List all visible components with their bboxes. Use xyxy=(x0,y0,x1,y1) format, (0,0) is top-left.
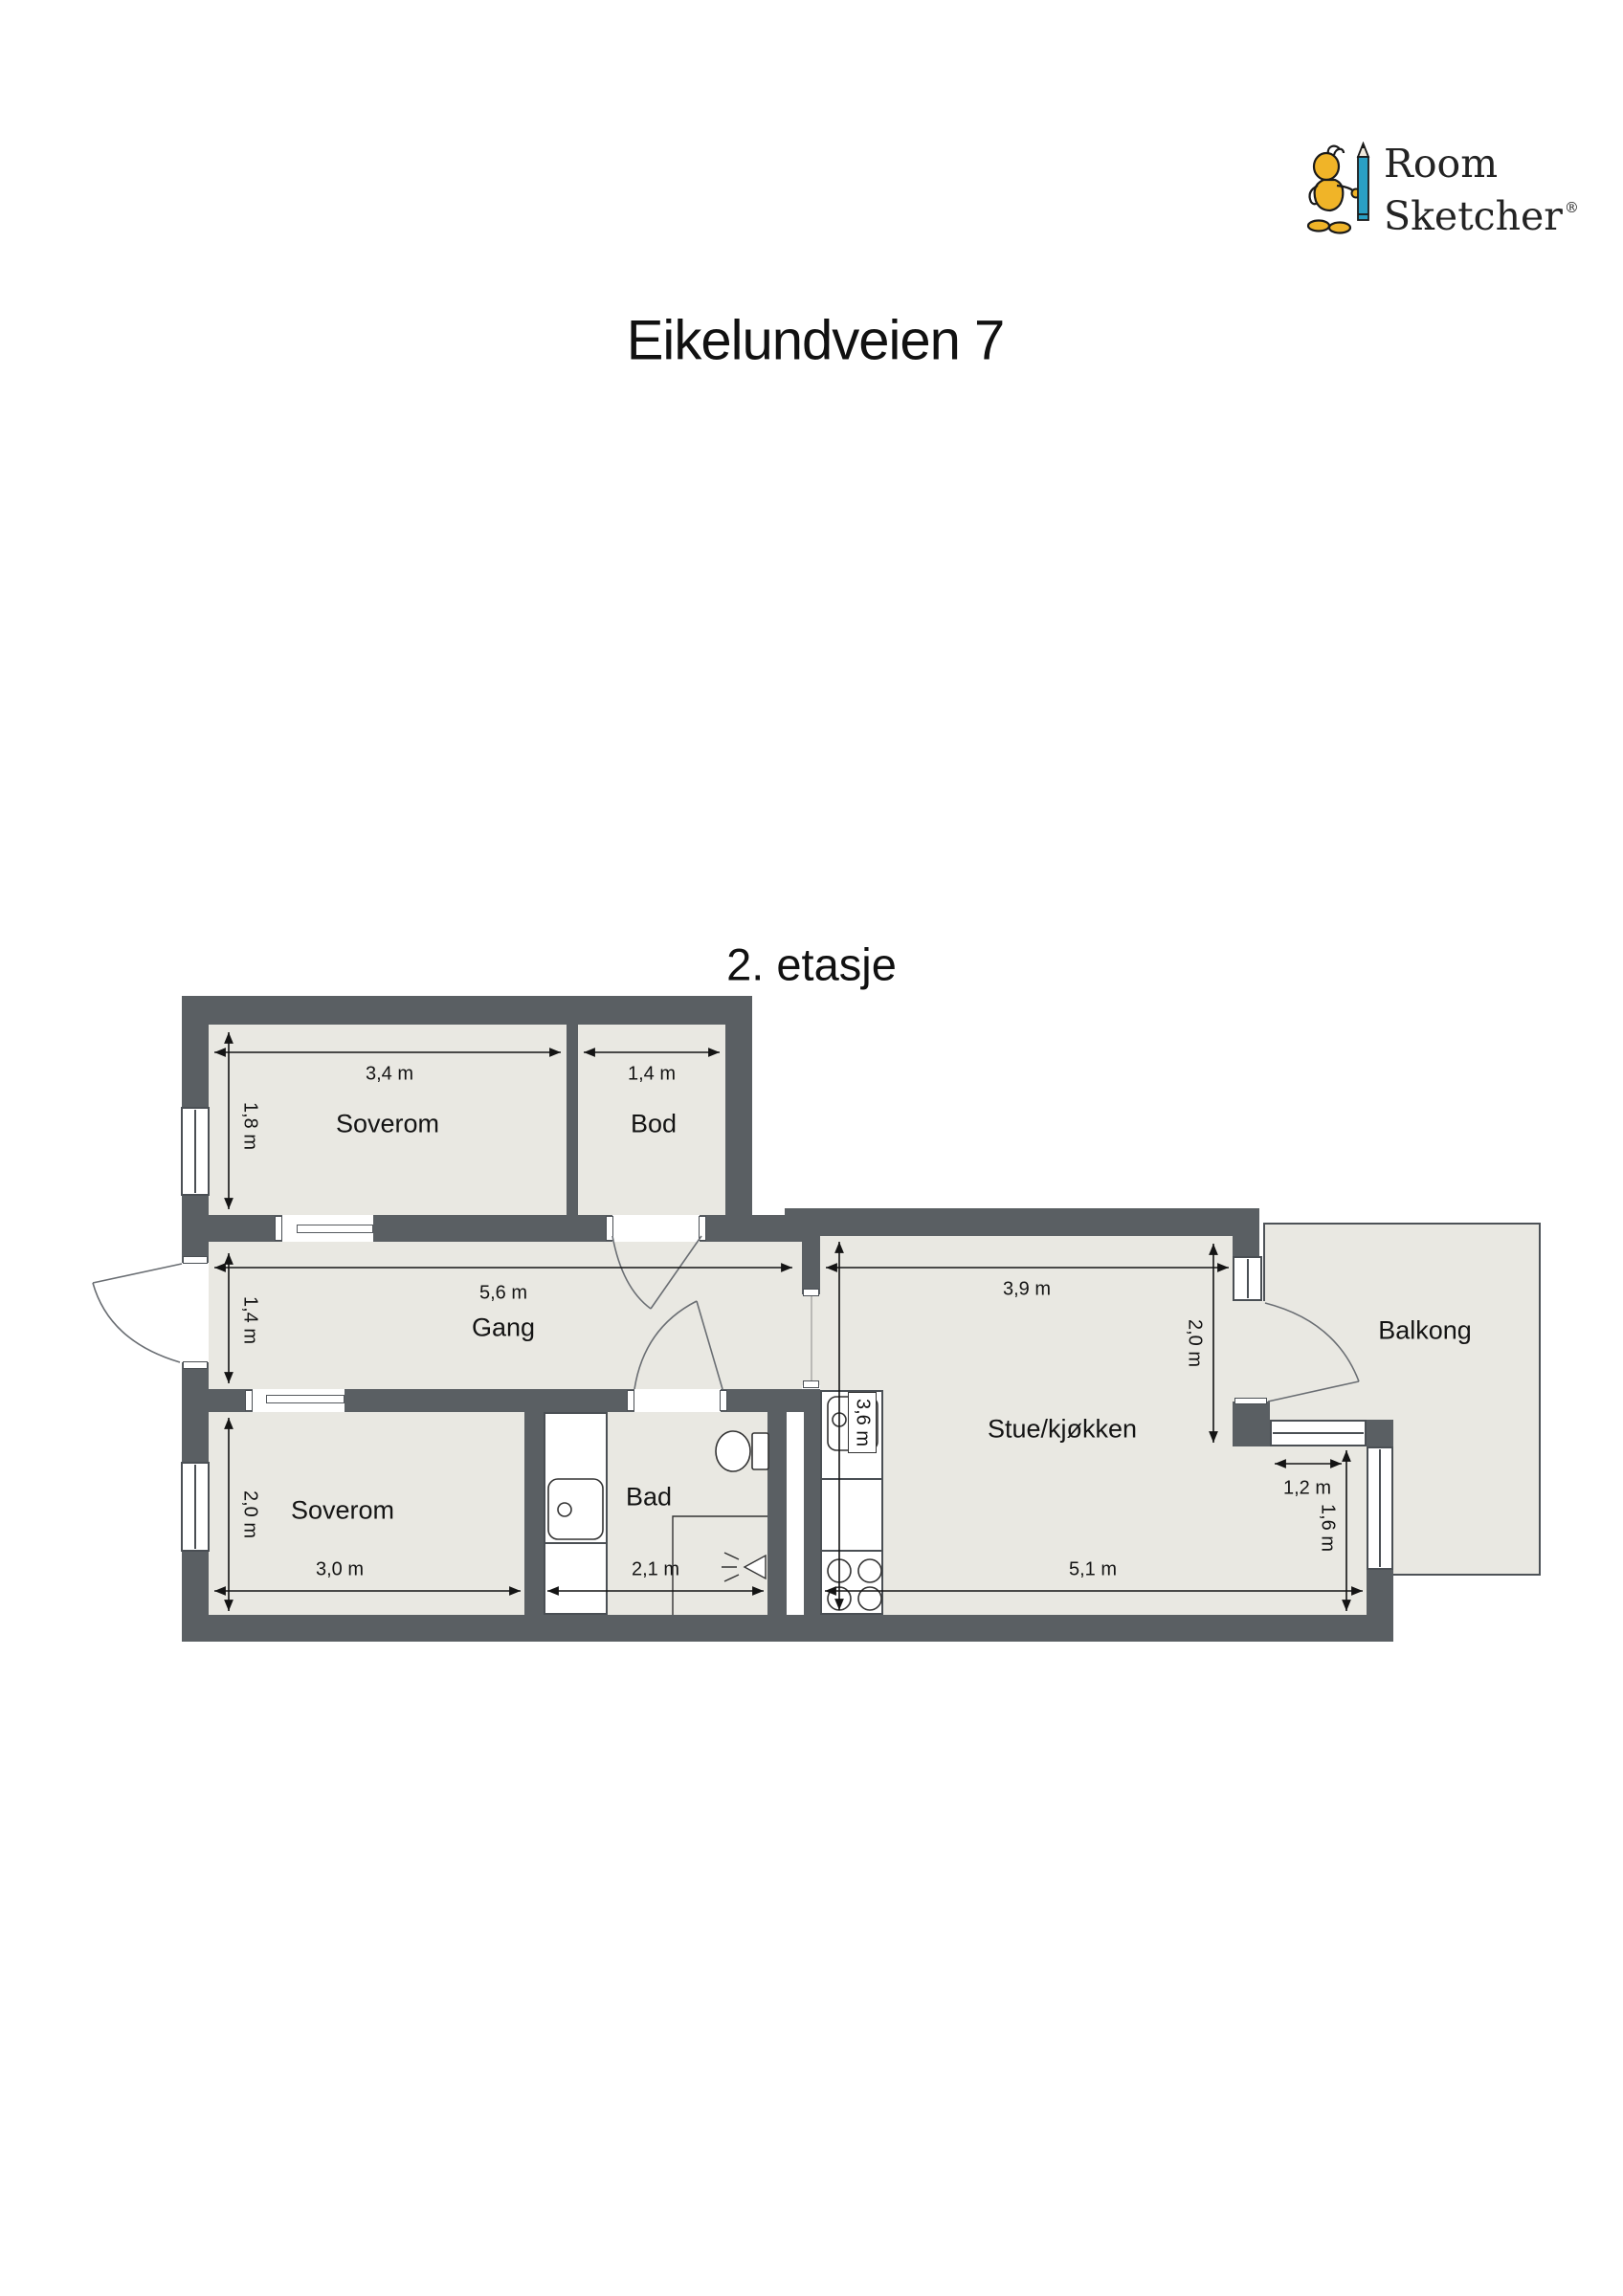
wall-gang-bottom-c xyxy=(721,1389,820,1412)
door-jamb xyxy=(699,1216,706,1241)
dim-label-bod-width: 1,4 m xyxy=(628,1064,676,1086)
wall-stue-top xyxy=(785,1208,1259,1236)
door-jamb xyxy=(720,1390,727,1411)
floorplan-page: Room Sketcher® Eikelundveien 7 2. etasje xyxy=(0,0,1623,2296)
bathroom-counter xyxy=(544,1412,608,1615)
dim-label-soverom-top-depth: 1,8 m xyxy=(239,1102,261,1150)
dim-label-bad-width: 2,1 m xyxy=(632,1559,679,1581)
door-jamb xyxy=(183,1361,208,1369)
dim-label-right-window-height: 1,6 m xyxy=(1317,1504,1339,1552)
dim-label-soverom-bottom-width: 3,0 m xyxy=(316,1559,364,1581)
door-jamb xyxy=(627,1390,634,1411)
window-stue-east xyxy=(1367,1446,1393,1570)
room-label-bad: Bad xyxy=(626,1483,672,1512)
door-jamb xyxy=(606,1216,613,1241)
wall-jog-corner xyxy=(1367,1420,1393,1446)
wall-top xyxy=(182,996,752,1025)
dim-label-gang-depth: 1,4 m xyxy=(239,1296,261,1344)
dim-label-kitchen-length: 3,6 m xyxy=(852,1399,874,1446)
wall-bod-right xyxy=(725,1025,752,1215)
door-jamb xyxy=(245,1390,253,1411)
room-label-bod: Bod xyxy=(631,1110,677,1139)
balcony-door-frame xyxy=(1233,1256,1262,1301)
floor-label: 2. etasje xyxy=(726,938,897,991)
sliding-door-soverom-top xyxy=(297,1225,373,1233)
dim-label-stue-right-depth: 2,0 m xyxy=(1184,1319,1206,1367)
wall-bottom xyxy=(182,1615,1393,1642)
wall-partition-soverom-bod xyxy=(567,1025,578,1215)
shaft xyxy=(787,1412,804,1615)
logo-word-room: Room xyxy=(1384,142,1579,186)
wall-gang-top-b xyxy=(373,1215,612,1242)
page-title: Eikelundveien 7 xyxy=(627,309,1005,373)
entrance-door-arc xyxy=(93,1283,180,1362)
dim-label-balcony-window-width: 1,2 m xyxy=(1283,1478,1331,1500)
floor-stue-southeast xyxy=(1233,1446,1367,1615)
entrance-door-leaf xyxy=(93,1264,182,1283)
floor-balcony-doorway xyxy=(1233,1301,1265,1402)
dim-label-stue-top-width: 3,9 m xyxy=(1003,1279,1051,1301)
door-jamb xyxy=(803,1289,819,1296)
wall-jog-left xyxy=(1233,1420,1270,1446)
door-opening-bod xyxy=(612,1215,700,1242)
window-soverom-top xyxy=(181,1107,210,1196)
wall-kitchen xyxy=(804,1389,820,1615)
door-jamb xyxy=(1234,1398,1267,1404)
wall-gang-top-a xyxy=(182,1215,282,1242)
room-label-balkong: Balkong xyxy=(1378,1316,1472,1346)
logo-wordmark: Room Sketcher® xyxy=(1384,142,1579,238)
door-opening-bad xyxy=(634,1389,721,1412)
room-label-gang: Gang xyxy=(472,1314,535,1343)
window-soverom-bottom xyxy=(181,1462,210,1552)
wall-gang-bottom-a xyxy=(182,1389,253,1412)
door-jamb xyxy=(275,1216,282,1241)
window-stue-south xyxy=(1270,1420,1367,1446)
roomsketcher-mascot-icon xyxy=(1301,142,1374,237)
wall-gang-bottom-b xyxy=(345,1389,634,1412)
wall-left-upper xyxy=(182,1025,209,1107)
wall-left-entry-lower xyxy=(182,1362,209,1462)
dim-label-soverom-bottom-depth: 2,0 m xyxy=(239,1490,261,1538)
roomsketcher-logo: Room Sketcher® xyxy=(1301,142,1579,238)
room-label-soverom-top: Soverom xyxy=(336,1110,439,1139)
door-jamb xyxy=(803,1380,819,1388)
dim-label-soverom-top-width: 3,4 m xyxy=(366,1064,413,1086)
wall-stub-passage xyxy=(802,1236,820,1294)
wall-right-upper xyxy=(1233,1236,1259,1256)
dim-label-gang-width: 5,6 m xyxy=(479,1283,527,1305)
wall-left-lower xyxy=(182,1552,209,1642)
floor-passage xyxy=(802,1294,820,1385)
sliding-door-soverom-bottom xyxy=(266,1395,345,1403)
logo-word-sketcher: Sketcher® xyxy=(1384,186,1579,238)
registered-trademark: ® xyxy=(1565,199,1579,216)
wall-partition-soverom-bad xyxy=(524,1412,544,1615)
room-label-soverom-bottom: Soverom xyxy=(291,1496,394,1526)
door-jamb xyxy=(183,1256,208,1264)
wall-bad-right xyxy=(767,1412,787,1615)
entrance-door-opening xyxy=(182,1263,209,1362)
room-label-stue-kjokken: Stue/kjøkken xyxy=(988,1415,1137,1445)
dim-label-stue-bottom-width: 5,1 m xyxy=(1069,1559,1117,1581)
